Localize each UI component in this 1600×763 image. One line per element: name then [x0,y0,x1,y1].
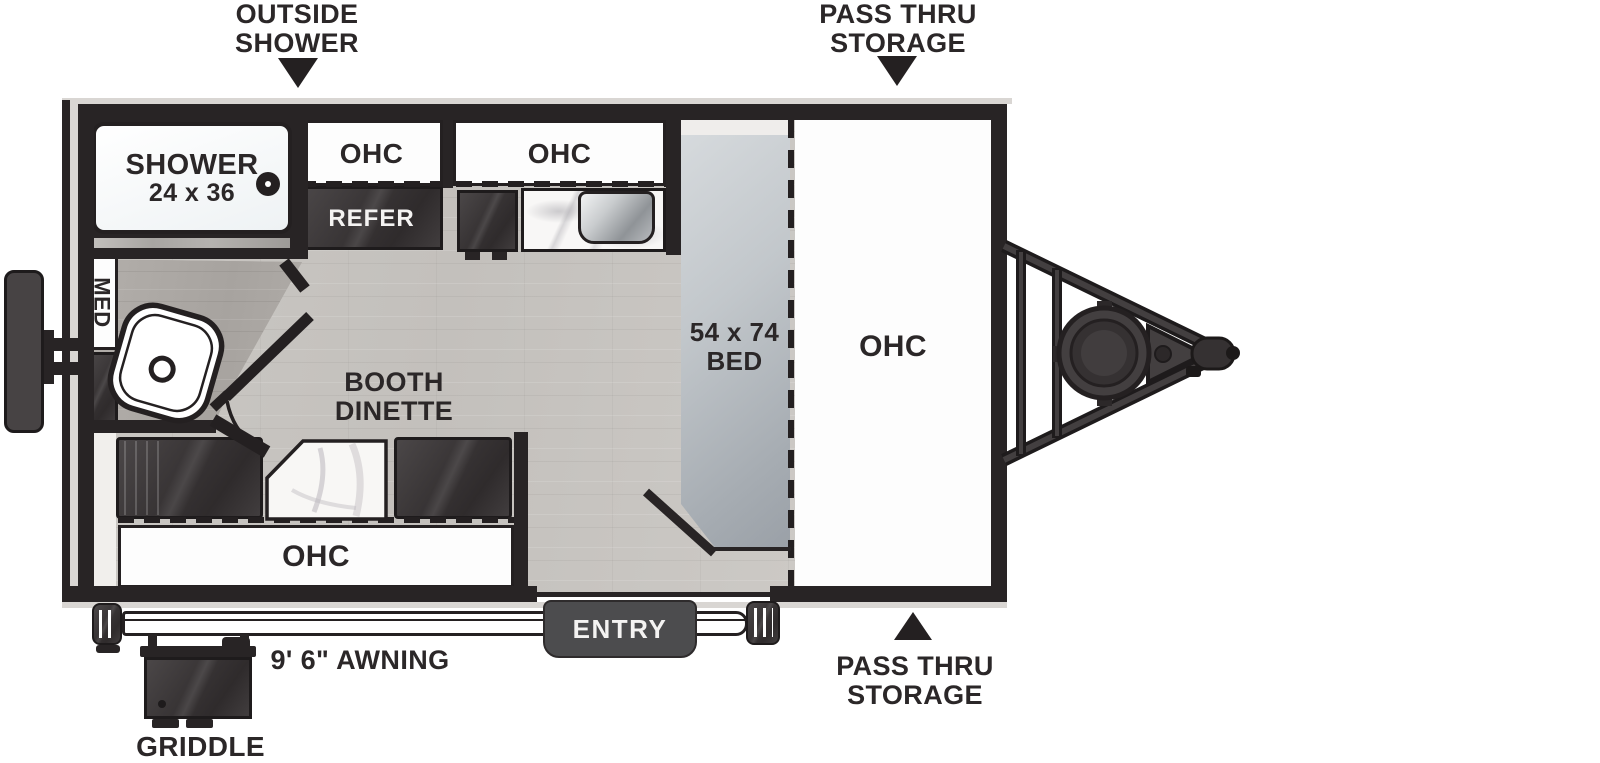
dinette-right-wall [514,432,528,588]
shower-label: SHOWER [126,150,259,180]
cooktop [457,190,518,252]
rear-wall [78,104,94,602]
body-edge-bottom [62,602,1007,608]
top-wall [62,104,1007,120]
tongue-plate [1148,326,1204,382]
awning-label: 9' 6" AWNING [260,646,460,675]
dinette-bench-left-pleats [124,441,160,515]
bathroom-top-wall [78,248,308,259]
ohc-2-label: OHC [528,139,591,168]
shower-size-label: 24 x 36 [149,180,235,207]
dinette-line1: BOOTH [314,368,474,397]
pass-thru-bottom-arrow-icon [894,612,932,640]
cooktop-foot [492,252,507,260]
griddle-foot [186,719,213,728]
outside-shower-line2: SHOWER [187,29,407,58]
refer-label: REFER [328,204,414,233]
griddle-top-bar [140,646,256,657]
pass-thru-top-arrow-icon [877,56,917,86]
ohc-cabinet-dinette: OHC [118,525,514,588]
kitchen-right-wall [666,120,681,255]
trailer-tongue [1004,246,1240,460]
griddle-knob [158,700,166,708]
pass-thru-bottom-line1: PASS THRU [805,652,1025,681]
awning-bracket-left-foot [96,645,120,653]
hitch-coupler [1186,338,1240,377]
pass-thru-top-line2: STORAGE [788,29,1008,58]
ohc-cabinet-2: OHC [453,120,666,186]
ohc-cabinet-1: OHC [300,120,443,186]
kitchen-sink [578,191,655,244]
ohc-dashed-line [300,181,666,187]
bed-line: BED [667,347,802,376]
ohc-dinette-label: OHC [282,542,350,571]
front-wall [991,104,1007,602]
refrigerator: REFER [300,186,443,250]
propane-tank [1053,301,1149,406]
dinette-line2: DINETTE [314,397,474,426]
pass-thru-top-line1: PASS THRU [788,0,1008,29]
rear-mounted-panel [4,270,44,433]
accessory-bracket-arm [44,362,80,375]
outside-shower-callout: OUTSIDE SHOWER [187,0,407,58]
shower-drain-dot [265,181,271,187]
dinette-dashed-line [118,517,514,523]
outside-shower-line1: OUTSIDE [187,0,407,29]
entry-threshold [537,592,770,597]
ohc-1-label: OHC [340,139,403,168]
ohc-front-label: OHC [833,332,953,361]
bed-size-line: 54 x 74 [667,318,802,347]
kitchen-divider-wall [443,120,453,188]
awning-bracket-right-slits [754,608,773,637]
bottom-wall-left [62,586,537,602]
rear-wall-gap [70,104,78,598]
griddle-label: GRIDDLE [128,732,273,761]
pass-thru-top-callout: PASS THRU STORAGE [788,0,1008,58]
outside-shower-arrow-icon [278,58,318,88]
bottom-wall-right [770,586,1007,602]
dinette-back-wall [78,420,216,433]
griddle-plate [144,657,252,719]
entry-step: ENTRY [543,600,697,658]
bed-label: 54 x 74 BED [667,318,802,376]
entry-label: ENTRY [573,615,668,644]
bed-headboard-shelf [681,120,791,135]
rear-outer-skin [62,100,70,602]
cooktop-foot [465,252,480,260]
shower-right-wall [296,120,308,259]
pass-thru-bottom-line2: STORAGE [805,681,1025,710]
accessory-bracket-arm [44,338,80,351]
pass-thru-bottom-callout: PASS THRU STORAGE [805,652,1025,710]
dinette-bench-right [394,437,512,519]
booth-dinette-label: BOOTH DINETTE [314,368,474,426]
floorplan-canvas: SHOWER 24 x 36 OHC REFER OHC MED OHC [0,0,1600,763]
awning-bracket-left-slits [99,610,116,638]
griddle-foot [152,719,179,728]
